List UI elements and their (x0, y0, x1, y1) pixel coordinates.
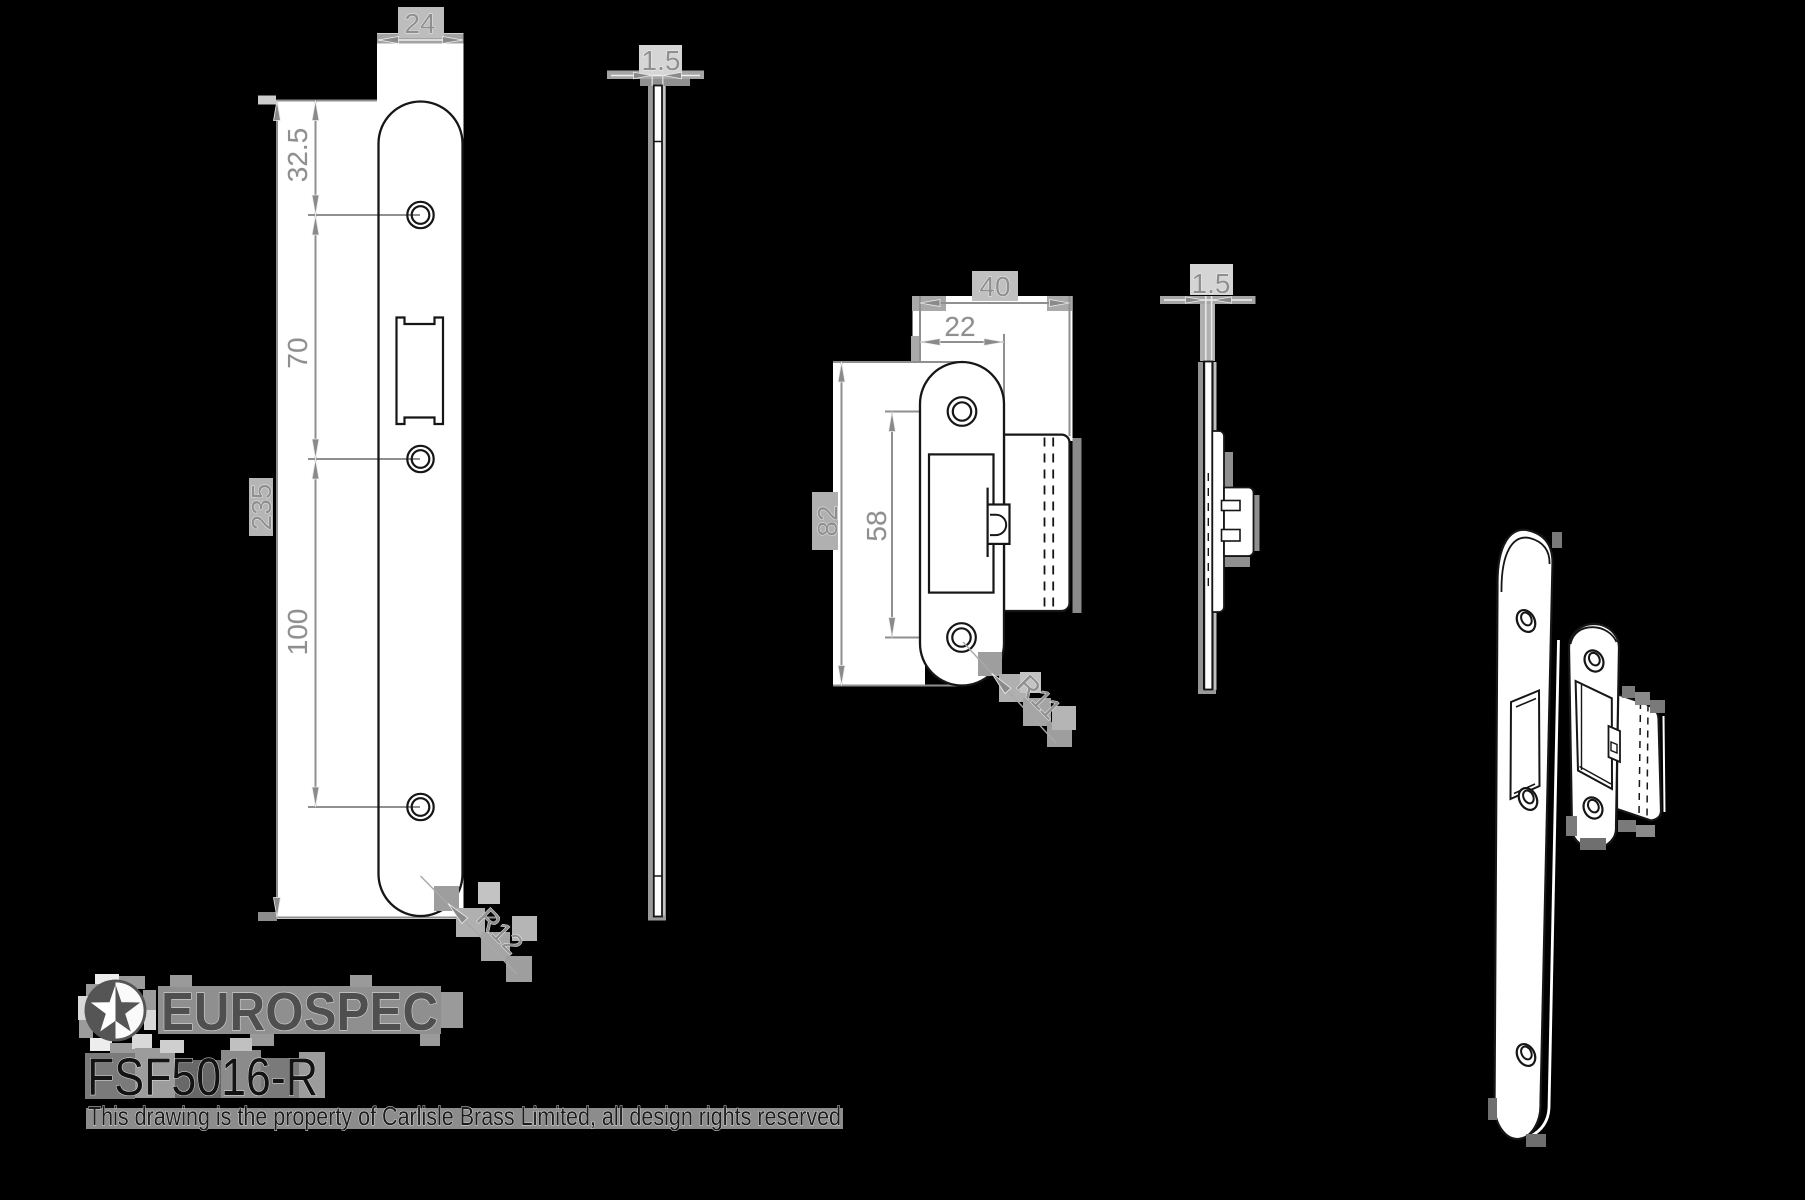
svg-text:32.5: 32.5 (282, 128, 313, 183)
svg-text:FSF5016-R: FSF5016-R (87, 1048, 318, 1107)
svg-text:100: 100 (282, 609, 313, 656)
svg-text:1.5: 1.5 (1192, 268, 1231, 299)
svg-text:This drawing is the property o: This drawing is the property of Carlisle… (88, 1101, 841, 1131)
svg-text:40: 40 (979, 271, 1010, 302)
svg-text:1.5: 1.5 (642, 45, 681, 76)
svg-text:82: 82 (812, 505, 843, 536)
svg-text:58: 58 (861, 510, 892, 541)
svg-text:235: 235 (246, 484, 277, 531)
svg-text:70: 70 (282, 337, 313, 368)
svg-text:22: 22 (944, 311, 975, 342)
svg-text:24: 24 (404, 8, 435, 39)
svg-text:EUROSPEC: EUROSPEC (161, 982, 438, 1042)
